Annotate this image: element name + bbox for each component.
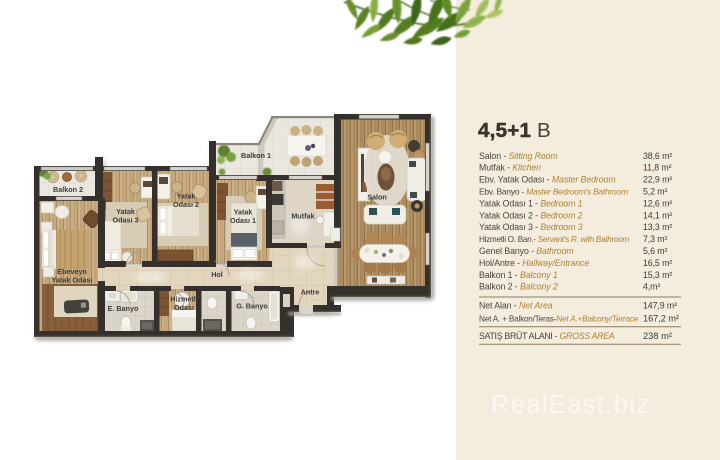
svg-text:13,3 m²: 13,3 m²	[643, 222, 672, 232]
svg-text:15,3 m²: 15,3 m²	[643, 270, 672, 280]
svg-text:Yatak Odası 3 - Bedroom 3: Yatak Odası 3 - Bedroom 3	[479, 222, 583, 232]
svg-text:Mutfak: Mutfak	[291, 212, 314, 221]
svg-text:7,3 m²: 7,3 m²	[643, 234, 668, 244]
svg-text:RealEast.biz: RealEast.biz	[491, 391, 650, 419]
svg-text:Ebv. Banyo - Master Bedroom's: Ebv. Banyo - Master Bedroom's Bathroom	[479, 187, 628, 197]
svg-text:Mutfak - Kitchen: Mutfak - Kitchen	[479, 163, 541, 173]
svg-text:Net A. + Balkon/Teras-Net A.+B: Net A. + Balkon/Teras-Net A.+Balcony/Ter…	[479, 315, 639, 324]
svg-text:Yatak Odası 1 - Bedroom 1: Yatak Odası 1 - Bedroom 1	[479, 198, 583, 208]
svg-text:Hol: Hol	[211, 270, 223, 279]
svg-text:G. Banyo: G. Banyo	[236, 302, 268, 311]
svg-text:5,6 m²: 5,6 m²	[643, 246, 668, 256]
svg-text:Balkon 2 - Balcony 2: Balkon 2 - Balcony 2	[479, 282, 558, 292]
svg-text:Balkon 1 - Balcony 1: Balkon 1 - Balcony 1	[479, 270, 558, 280]
svg-text:147,9 m²: 147,9 m²	[643, 301, 677, 311]
svg-text:Salon: Salon	[367, 193, 387, 202]
svg-text:167,2 m²: 167,2 m²	[643, 314, 679, 324]
svg-text:4,5+1 B: 4,5+1 B	[478, 119, 551, 142]
svg-text:Hizmetli O. Ban.- Servant's R.: Hizmetli O. Ban.- Servant's R. with Bath…	[479, 235, 629, 244]
svg-text:Balkon 1: Balkon 1	[241, 151, 271, 160]
svg-text:Net Alan - Net Area: Net Alan - Net Area	[479, 301, 553, 311]
svg-text:Salon - Sitting Room: Salon - Sitting Room	[479, 151, 558, 161]
svg-text:38,6 m²: 38,6 m²	[643, 151, 672, 161]
svg-text:22,9 m²: 22,9 m²	[643, 175, 672, 185]
svg-text:Odası: Odası	[174, 303, 194, 312]
svg-text:Odası 3: Odası 3	[113, 216, 139, 225]
svg-text:14,1 m²: 14,1 m²	[643, 210, 672, 220]
svg-text:4,m²: 4,m²	[643, 282, 660, 292]
svg-text:E. Banyo: E. Banyo	[108, 304, 139, 313]
svg-text:Odası 2: Odası 2	[173, 200, 199, 209]
svg-text:Genel Banyo - Bathroom: Genel Banyo - Bathroom	[479, 246, 574, 256]
svg-text:Yatak Odası 2 - Bedroom 2: Yatak Odası 2 - Bedroom 2	[479, 210, 583, 220]
svg-text:12,6 m²: 12,6 m²	[643, 198, 672, 208]
svg-text:11,8 m²: 11,8 m²	[643, 163, 672, 173]
svg-text:Antre: Antre	[301, 288, 320, 297]
svg-text:SATIŞ BRÜT ALANI - GROSS AREA: SATIŞ BRÜT ALANI - GROSS AREA	[479, 331, 615, 341]
svg-text:Ebv. Yatak Odası - Master Bedr: Ebv. Yatak Odası - Master Bedroom	[479, 175, 616, 185]
svg-text:238 m²: 238 m²	[643, 331, 672, 341]
svg-text:Balkon 2: Balkon 2	[53, 185, 83, 194]
svg-text:Yatak Odası: Yatak Odası	[52, 276, 93, 285]
svg-text:16,5 m²: 16,5 m²	[643, 258, 672, 268]
svg-text:Hol/Antre - Hallway/Entrance: Hol/Antre - Hallway/Entrance	[479, 258, 589, 268]
svg-text:5,2 m²: 5,2 m²	[643, 187, 668, 197]
svg-text:Odası 1: Odası 1	[230, 216, 256, 225]
